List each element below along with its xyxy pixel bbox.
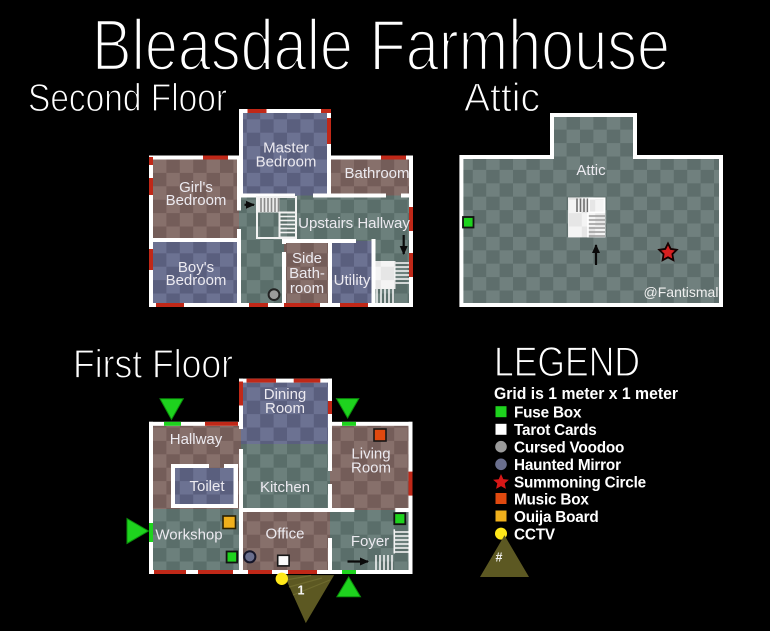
svg-text:Upstairs Hallway: Upstairs Hallway	[298, 215, 410, 232]
svg-text:Kitchen: Kitchen	[260, 479, 310, 496]
svg-text:Bathroom: Bathroom	[344, 165, 409, 182]
svg-text:Foyer: Foyer	[351, 533, 389, 550]
svg-text:Fuse Box: Fuse Box	[514, 405, 582, 422]
svg-text:Room: Room	[351, 460, 391, 477]
svg-text:Workshop: Workshop	[155, 527, 222, 544]
svg-text:Bedroom: Bedroom	[256, 154, 317, 171]
svg-text:CCTV: CCTV	[514, 527, 556, 544]
svg-text:Bedroom: Bedroom	[166, 272, 227, 289]
svg-text:Music Box: Music Box	[514, 492, 589, 509]
svg-text:First Floor: First Floor	[73, 342, 233, 386]
svg-text:@Fantismal: @Fantismal	[644, 284, 719, 300]
svg-text:1: 1	[298, 584, 305, 598]
svg-text:Haunted Mirror: Haunted Mirror	[514, 457, 621, 474]
svg-text:room: room	[290, 280, 324, 297]
svg-text:Bedroom: Bedroom	[166, 192, 227, 209]
svg-text:Cursed Voodoo: Cursed Voodoo	[514, 440, 624, 457]
svg-text:Office: Office	[266, 526, 305, 543]
svg-text:Utility: Utility	[334, 272, 371, 289]
svg-text:Bleasdale Farmhouse: Bleasdale Farmhouse	[92, 4, 670, 85]
svg-text:Room: Room	[265, 400, 305, 417]
svg-text:Hallway: Hallway	[170, 431, 223, 448]
svg-text:Attic: Attic	[576, 162, 606, 179]
svg-text:LEGEND: LEGEND	[494, 338, 640, 385]
svg-text:Summoning Circle: Summoning Circle	[514, 475, 646, 492]
svg-text:Attic: Attic	[464, 76, 540, 120]
svg-text:Ouija Board: Ouija Board	[514, 509, 599, 526]
svg-text:Grid is 1 meter x 1 meter: Grid is 1 meter x 1 meter	[494, 385, 679, 403]
svg-text:Toilet: Toilet	[189, 478, 225, 495]
svg-text:Second Floor: Second Floor	[28, 76, 227, 120]
svg-text:#: #	[496, 551, 503, 565]
svg-text:Tarot Cards: Tarot Cards	[514, 422, 597, 439]
